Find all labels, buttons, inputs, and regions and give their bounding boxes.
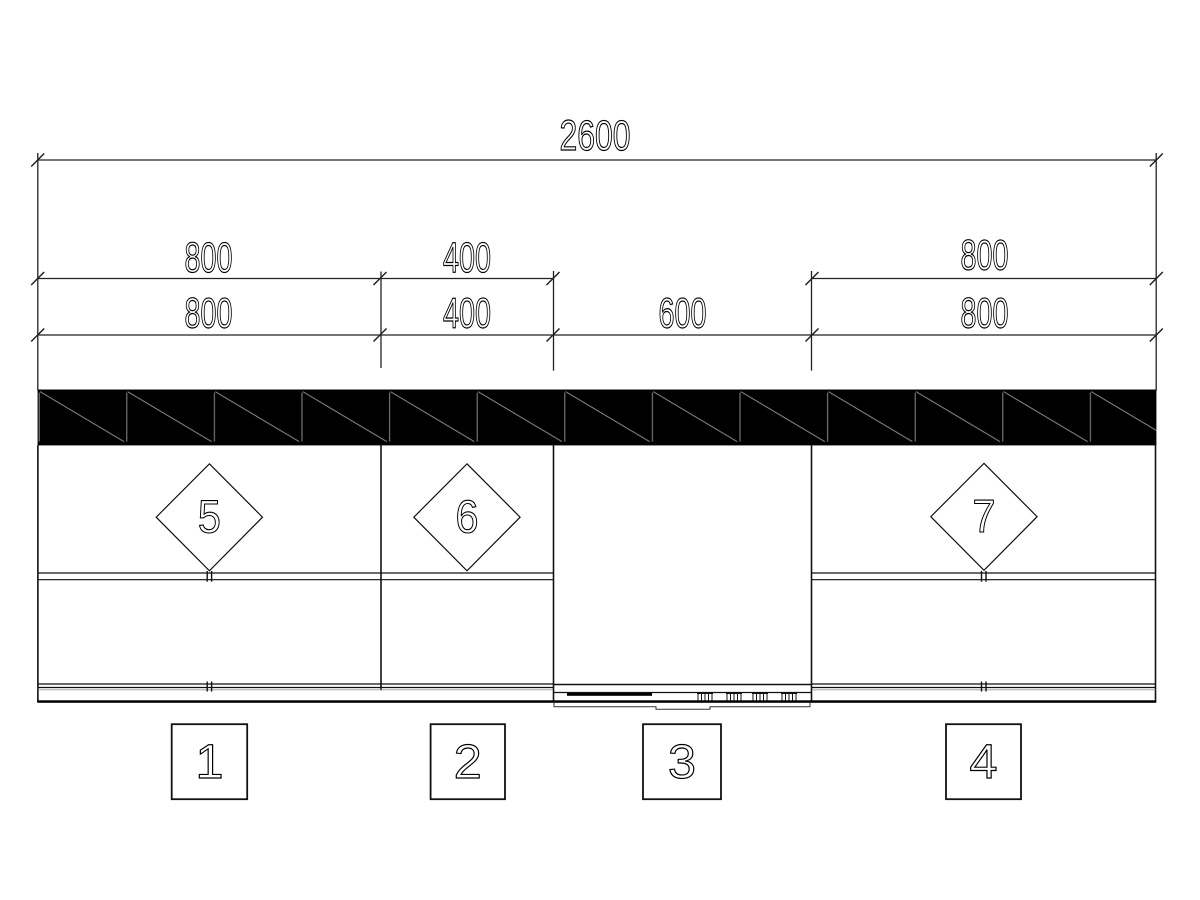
- svg-text:6: 6: [456, 491, 479, 543]
- svg-text:800: 800: [185, 235, 233, 282]
- svg-text:800: 800: [185, 291, 233, 338]
- svg-text:800: 800: [961, 291, 1009, 338]
- svg-text:800: 800: [961, 233, 1009, 280]
- svg-text:7: 7: [973, 490, 996, 542]
- svg-text:3: 3: [668, 736, 696, 789]
- svg-text:4: 4: [970, 736, 998, 789]
- svg-text:2: 2: [454, 736, 482, 789]
- svg-text:400: 400: [443, 291, 491, 338]
- svg-text:2600: 2600: [560, 113, 631, 160]
- svg-text:600: 600: [659, 291, 707, 338]
- svg-text:5: 5: [198, 491, 221, 543]
- svg-text:1: 1: [196, 736, 224, 789]
- svg-text:400: 400: [443, 235, 491, 282]
